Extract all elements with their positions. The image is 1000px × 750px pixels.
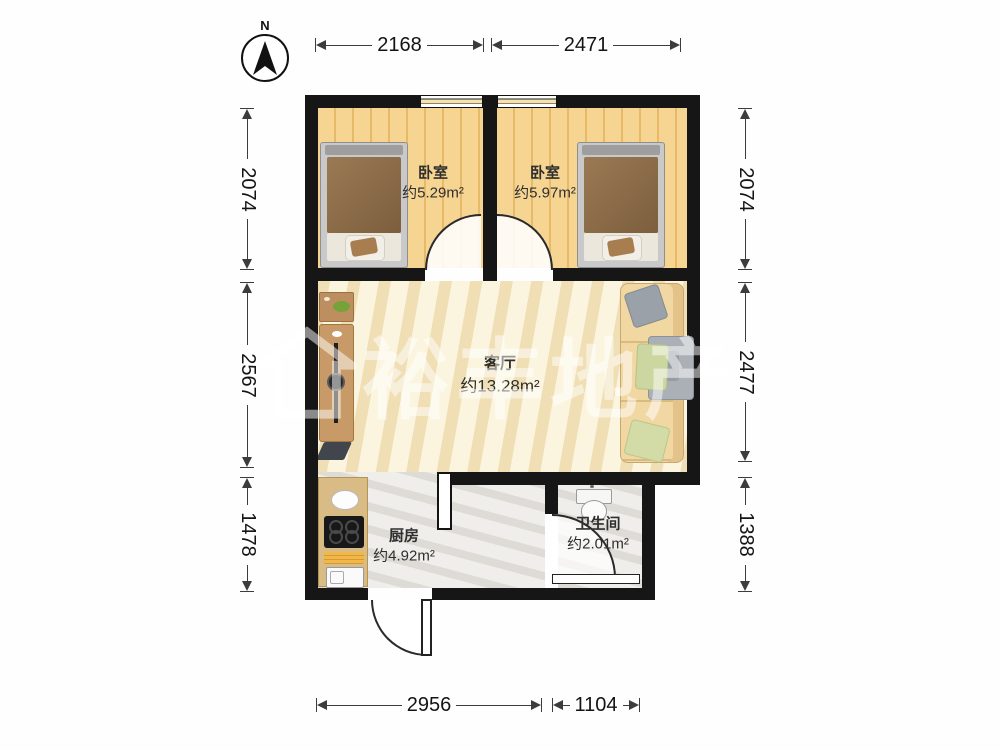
wall-left	[305, 95, 318, 600]
bed	[320, 142, 408, 268]
room-label-bathroom: 卫生间 约2.01m²	[567, 515, 629, 554]
door-threshold-bathroom	[552, 574, 640, 584]
floorplan: N	[0, 0, 1000, 750]
dimension-right-2: 2477	[738, 282, 752, 462]
bed-blanket	[327, 157, 401, 233]
wall-stub-kitchen	[437, 472, 452, 530]
speaker-icon	[327, 373, 345, 391]
dimension-left-3: 1478	[240, 477, 254, 592]
plant-icon	[333, 301, 350, 312]
wall-bottom-right	[432, 588, 655, 600]
dimension-left-1: 2074	[240, 108, 254, 270]
tv-cabinet	[319, 324, 354, 442]
kitchen-counter	[318, 477, 368, 587]
bed-headboard	[582, 145, 660, 155]
cabinet-knob	[332, 331, 342, 337]
wall-living-kitchen	[437, 472, 700, 485]
dimension-left-2: 2567	[240, 282, 254, 468]
wall-bottom-left	[305, 588, 368, 600]
room-area: 约4.92m²	[373, 546, 435, 566]
dimension-top-2: 2471	[491, 38, 681, 52]
bed-headboard	[325, 145, 403, 155]
room-name: 卫生间	[567, 515, 629, 535]
washer-icon	[326, 567, 364, 588]
door-arc-entrance	[371, 600, 427, 656]
room-area: 约2.01m²	[567, 534, 629, 554]
dimension-bottom-2: 1104	[552, 698, 640, 712]
room-label-bedroom-left: 卧室 约5.29m²	[402, 164, 464, 203]
wall-bathroom-right	[642, 472, 655, 600]
room-name: 厨房	[373, 527, 435, 547]
cooktop-icon	[324, 516, 364, 548]
plant-shelf	[319, 292, 354, 322]
bed-blanket	[584, 157, 658, 233]
compass: N	[238, 18, 292, 82]
wall-bedroom-divider	[483, 95, 497, 281]
compass-n-label: N	[238, 18, 292, 33]
dimension-bottom-1: 2956	[316, 698, 542, 712]
door-leaf-entrance	[421, 599, 432, 656]
north-arrow-icon	[241, 34, 289, 82]
room-area: 约5.29m²	[402, 183, 464, 203]
sofa-cushion-green	[635, 343, 669, 391]
room-area: 约13.28m²	[460, 375, 539, 397]
wall-right	[687, 95, 700, 485]
sink-icon	[331, 490, 359, 510]
window-bedroom-left	[420, 95, 483, 108]
wall-bathroom-left	[545, 472, 558, 514]
room-label-bedroom-right: 卧室 约5.97m²	[514, 164, 576, 203]
shelf-dot	[324, 297, 330, 301]
bed	[577, 142, 665, 268]
wall-bedroom-living-left	[305, 268, 425, 281]
wall-bedroom-living-right	[553, 268, 700, 281]
cutting-board-icon	[324, 552, 364, 564]
dimension-top-1: 2168	[315, 38, 484, 52]
room-name: 卧室	[402, 164, 464, 184]
room-label-living: 客厅 约13.28m²	[460, 355, 539, 398]
window-bedroom-right	[497, 95, 557, 108]
dimension-right-3: 1388	[738, 477, 752, 592]
dimension-right-1: 2074	[738, 108, 752, 270]
room-name: 客厅	[460, 355, 539, 376]
room-area: 约5.97m²	[514, 183, 576, 203]
room-name: 卧室	[514, 164, 576, 184]
room-label-kitchen: 厨房 约4.92m²	[373, 527, 435, 566]
